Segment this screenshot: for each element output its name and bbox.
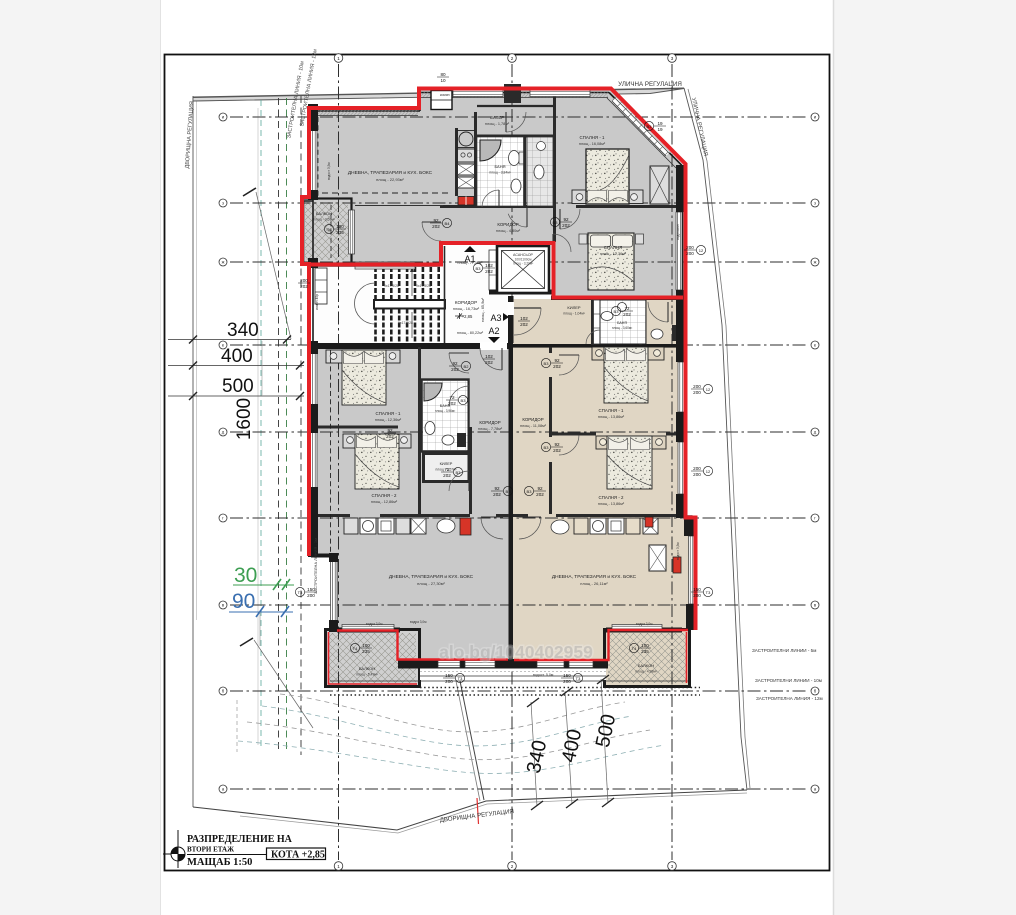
svg-text:Т3: Т3 <box>576 676 581 681</box>
svg-text:площ - 16,08м²: площ - 16,08м² <box>579 142 606 146</box>
svg-text:Т4: Т4 <box>632 646 637 651</box>
svg-text:3: 3 <box>671 864 674 869</box>
svg-text:150: 150 <box>563 673 571 678</box>
svg-text:В3: В3 <box>647 124 653 129</box>
svg-text:2: 2 <box>511 864 514 869</box>
svg-text:А3: А3 <box>490 313 501 323</box>
svg-text:БАЛКОН: БАЛКОН <box>316 211 332 216</box>
svg-text:500: 500 <box>222 376 254 397</box>
svg-text:В3: В3 <box>506 489 512 494</box>
svg-text:92: 92 <box>554 358 560 363</box>
svg-text:1: 1 <box>337 56 340 61</box>
svg-text:202: 202 <box>485 269 493 274</box>
svg-text:КОТА +2,85: КОТА +2,85 <box>271 850 325 861</box>
svg-text:площ - 3,20м²: площ - 3,20м² <box>513 262 533 266</box>
svg-text:площ - 3,68м²: площ - 3,68м² <box>313 218 335 222</box>
svg-text:площ - 3,60м²: площ - 3,60м² <box>612 326 632 330</box>
svg-text:водост 3,5м: водост 3,5м <box>327 162 331 180</box>
svg-text:А2: А2 <box>488 326 499 336</box>
svg-text:202: 202 <box>451 367 459 372</box>
svg-text:202: 202 <box>536 492 544 497</box>
svg-text:202: 202 <box>432 224 440 229</box>
svg-text:202: 202 <box>493 492 501 497</box>
svg-text:КОРИДОР: КОРИДОР <box>497 222 518 227</box>
svg-text:102: 102 <box>485 354 493 359</box>
svg-text:КОРИДОР: КОРИДОР <box>479 420 500 425</box>
svg-text:92: 92 <box>554 442 560 447</box>
svg-text:alo.bg/1040402959: alo.bg/1040402959 <box>439 642 593 662</box>
svg-text:1: 1 <box>337 864 340 869</box>
svg-text:площ - 4,98м²: площ - 4,98м² <box>635 670 657 674</box>
svg-text:92: 92 <box>433 218 439 223</box>
svg-text:12: 12 <box>706 387 711 392</box>
svg-text:92: 92 <box>563 217 569 222</box>
svg-text:СПАЛНЯ - 1: СПАЛНЯ - 1 <box>599 408 624 413</box>
svg-text:площ - 65,9м²: площ - 65,9м² <box>481 297 485 322</box>
svg-text:ЗАСТРОИТЕЛНА ЛИНИЯ - 12м: ЗАСТРОИТЕЛНА ЛИНИЯ - 12м <box>756 696 823 701</box>
svg-text:202: 202 <box>485 360 493 365</box>
svg-text:видра 3,0м: видра 3,0м <box>636 622 652 626</box>
svg-text:19: 19 <box>657 127 663 132</box>
svg-text:ДНЕВНА, ТРАПЕЗАРИЯ и КУХ. БОКС: ДНЕВНА, ТРАПЕЗАРИЯ и КУХ. БОКС <box>389 574 474 580</box>
svg-text:ж: ж <box>222 260 225 265</box>
svg-text:БАЛКОН: БАЛКОН <box>638 663 654 668</box>
svg-text:200: 200 <box>300 278 308 283</box>
svg-text:400: 400 <box>221 346 253 367</box>
svg-text:200: 200 <box>686 251 694 256</box>
svg-text:Т4: Т4 <box>353 646 358 651</box>
svg-text:площ - 7,78м²: площ - 7,78м² <box>478 427 503 431</box>
svg-text:ЗАСТРОИТЕЛНИ ЛИНИИ - 5м: ЗАСТРОИТЕЛНИ ЛИНИИ - 5м <box>752 648 816 653</box>
svg-text:12: 12 <box>706 469 711 474</box>
svg-text:СПАЛНЯ - 1: СПАЛНЯ - 1 <box>580 135 605 140</box>
svg-text:9х17,5/28: 9х17,5/28 <box>398 321 413 325</box>
svg-text:12: 12 <box>699 248 704 253</box>
svg-text:площ - 22,93м²: площ - 22,93м² <box>376 177 404 182</box>
svg-text:КИЛЕР: КИЛЕР <box>490 115 505 120</box>
svg-text:200: 200 <box>693 466 701 471</box>
svg-text:КИЛЕР: КИЛЕР <box>567 305 580 310</box>
svg-text:202: 202 <box>448 401 456 406</box>
svg-text:водост 3,5м: водост 3,5м <box>676 542 680 560</box>
svg-text:БАЛКОН: БАЛКОН <box>359 666 375 671</box>
svg-text:10: 10 <box>440 78 446 83</box>
svg-text:БАНЯ: БАНЯ <box>617 321 627 325</box>
svg-text:80: 80 <box>440 72 446 77</box>
svg-text:АСАНСЬОР: АСАНСЬОР <box>513 253 533 257</box>
svg-text:340: 340 <box>227 320 259 341</box>
svg-text:200: 200 <box>693 593 701 598</box>
svg-text:180: 180 <box>336 224 344 229</box>
svg-text:202: 202 <box>562 223 570 228</box>
svg-text:В3: В3 <box>527 489 533 494</box>
svg-text:72: 72 <box>624 306 630 311</box>
svg-text:РАЗПРЕДЕЛЕНИЕ НА: РАЗПРЕДЕЛЕНИЕ НА <box>187 834 293 845</box>
svg-text:3: 3 <box>671 56 674 61</box>
svg-text:200: 200 <box>693 384 701 389</box>
svg-text:202: 202 <box>386 434 394 439</box>
svg-text:площ - 1,04м²: площ - 1,04м² <box>563 312 585 316</box>
svg-text:150: 150 <box>693 587 701 592</box>
svg-text:ж: ж <box>814 260 817 265</box>
svg-text:100: 100 <box>362 643 370 648</box>
svg-text:площ - 11,08м²: площ - 11,08м² <box>520 424 547 428</box>
svg-text:202: 202 <box>300 284 308 289</box>
svg-text:2: 2 <box>511 56 514 61</box>
svg-text:хидроизол: хидроизол <box>676 224 680 240</box>
svg-text:В3: В3 <box>476 266 482 271</box>
svg-text:235: 235 <box>362 649 370 654</box>
svg-text:102: 102 <box>520 316 528 321</box>
svg-text:202: 202 <box>553 364 561 369</box>
svg-text:з: з <box>222 201 224 206</box>
svg-text:водост. 5,0м: водост. 5,0м <box>533 673 554 677</box>
svg-text:СПАЛНЯ: СПАЛНЯ <box>604 245 623 250</box>
svg-text:площ - 13,86м²: площ - 13,86м² <box>598 415 625 419</box>
svg-text:202: 202 <box>623 312 631 317</box>
svg-text:Т3: Т3 <box>706 590 711 595</box>
svg-text:92: 92 <box>452 361 458 366</box>
svg-text:площ - 77,08м²: площ - 77,08м² <box>458 261 484 265</box>
svg-text:КОРИДОР: КОРИДОР <box>522 417 543 422</box>
svg-text:200: 200 <box>693 390 701 395</box>
svg-text:100: 100 <box>641 643 649 648</box>
svg-text:МАЩАБ 1:50: МАЩАБ 1:50 <box>187 857 252 868</box>
svg-text:200: 200 <box>445 679 453 684</box>
svg-text:200: 200 <box>693 472 701 477</box>
svg-text:КИЛЕР: КИЛЕР <box>440 461 453 466</box>
svg-text:В2: В2 <box>464 364 470 369</box>
svg-text:+2,85: +2,85 <box>462 314 473 319</box>
svg-text:площ - 4,80м²: площ - 4,80м² <box>496 229 521 233</box>
svg-text:площ - 16,73м²: площ - 16,73м² <box>453 307 480 311</box>
svg-text:200: 200 <box>563 679 571 684</box>
svg-text:СПАЛНЯ - 2: СПАЛНЯ - 2 <box>372 493 397 498</box>
svg-text:92: 92 <box>387 428 393 433</box>
svg-text:ЗАСТРОИТЕЛНИ ЛИНИИ - 10м: ЗАСТРОИТЕЛНИ ЛИНИИ - 10м <box>755 678 822 683</box>
svg-text:72: 72 <box>449 395 455 400</box>
svg-text:В3: В3 <box>614 309 620 314</box>
svg-text:92: 92 <box>494 486 500 491</box>
svg-text:9х17,5/28: 9х17,5/28 <box>384 284 399 288</box>
svg-text:235: 235 <box>336 230 344 235</box>
svg-text:П6: П6 <box>326 227 332 232</box>
svg-text:комин 4бр: комин 4бр <box>315 294 319 310</box>
svg-text:9х17,5/28: 9х17,5/28 <box>416 284 431 288</box>
svg-text:площ - 12,86м²: площ - 12,86м² <box>371 500 398 504</box>
svg-text:90: 90 <box>232 590 255 613</box>
svg-text:В3: В3 <box>553 220 559 225</box>
svg-text:19: 19 <box>657 121 663 126</box>
svg-text:200: 200 <box>686 245 694 250</box>
svg-text:202: 202 <box>553 448 561 453</box>
svg-text:202: 202 <box>520 322 528 327</box>
svg-text:Т3: Т3 <box>298 590 303 595</box>
svg-text:площ - 12,36м²: площ - 12,36м² <box>375 418 402 422</box>
svg-text:площ - 3,96м²: площ - 3,96м² <box>435 409 455 413</box>
svg-text:комин: комин <box>440 93 450 97</box>
svg-text:КОРИДОР: КОРИДОР <box>455 300 477 305</box>
svg-text:площ - 13,86м²: площ - 13,86м² <box>598 502 625 506</box>
svg-text:видра 3,0м: видра 3,0м <box>366 622 382 626</box>
svg-text:ДНЕВНА, ТРАПЕЗАРИЯ и КУХ. БОКС: ДНЕВНА, ТРАПЕЗАРИЯ и КУХ. БОКС <box>348 170 433 176</box>
svg-text:72: 72 <box>444 467 450 472</box>
svg-text:СПАЛНЯ - 1: СПАЛНЯ - 1 <box>376 411 401 416</box>
svg-text:БАНЯ: БАНЯ <box>495 164 506 169</box>
svg-text:В4: В4 <box>445 221 451 226</box>
svg-text:102: 102 <box>485 263 493 268</box>
svg-text:площ - 5,49м²: площ - 5,49м² <box>356 673 378 677</box>
svg-text:площ - 80,22м²: площ - 80,22м² <box>457 331 484 335</box>
svg-text:Т3: Т3 <box>458 676 463 681</box>
svg-text:СПАЛНЯ - 2: СПАЛНЯ - 2 <box>599 495 624 500</box>
svg-text:В3: В3 <box>544 361 550 366</box>
svg-text:202: 202 <box>443 473 451 478</box>
svg-text:235: 235 <box>641 649 649 654</box>
svg-text:В3: В3 <box>456 470 462 475</box>
svg-text:В3: В3 <box>544 445 550 450</box>
svg-text:площ - 26,11м²: площ - 26,11м² <box>580 581 608 586</box>
svg-text:видра 3,0м: видра 3,0м <box>410 620 426 624</box>
svg-text:92: 92 <box>537 486 543 491</box>
svg-text:з: з <box>814 201 816 206</box>
svg-text:В3: В3 <box>461 398 467 403</box>
svg-text:ДНЕВНА, ТРАПЕЗАРИЯ и КУХ. БОКС: ДНЕВНА, ТРАПЕЗАРИЯ и КУХ. БОКС <box>552 574 637 580</box>
svg-text:ЗАСТРОИТЕЛНА ЛИНИЯ - 1м: ЗАСТРОИТЕЛНА ЛИНИЯ - 1м <box>313 538 318 594</box>
svg-text:площ - 3,84м²: площ - 3,84м² <box>489 171 511 175</box>
svg-text:площ - 12,36м²: площ - 12,36м² <box>600 252 627 256</box>
svg-text:150: 150 <box>445 673 453 678</box>
svg-text:30: 30 <box>234 564 257 587</box>
svg-text:ВТОРИ ЕТАЖ: ВТОРИ ЕТАЖ <box>187 846 234 854</box>
svg-text:площ - 27,30м²: площ - 27,30м² <box>417 581 445 586</box>
svg-text:1600: 1600 <box>234 398 255 440</box>
